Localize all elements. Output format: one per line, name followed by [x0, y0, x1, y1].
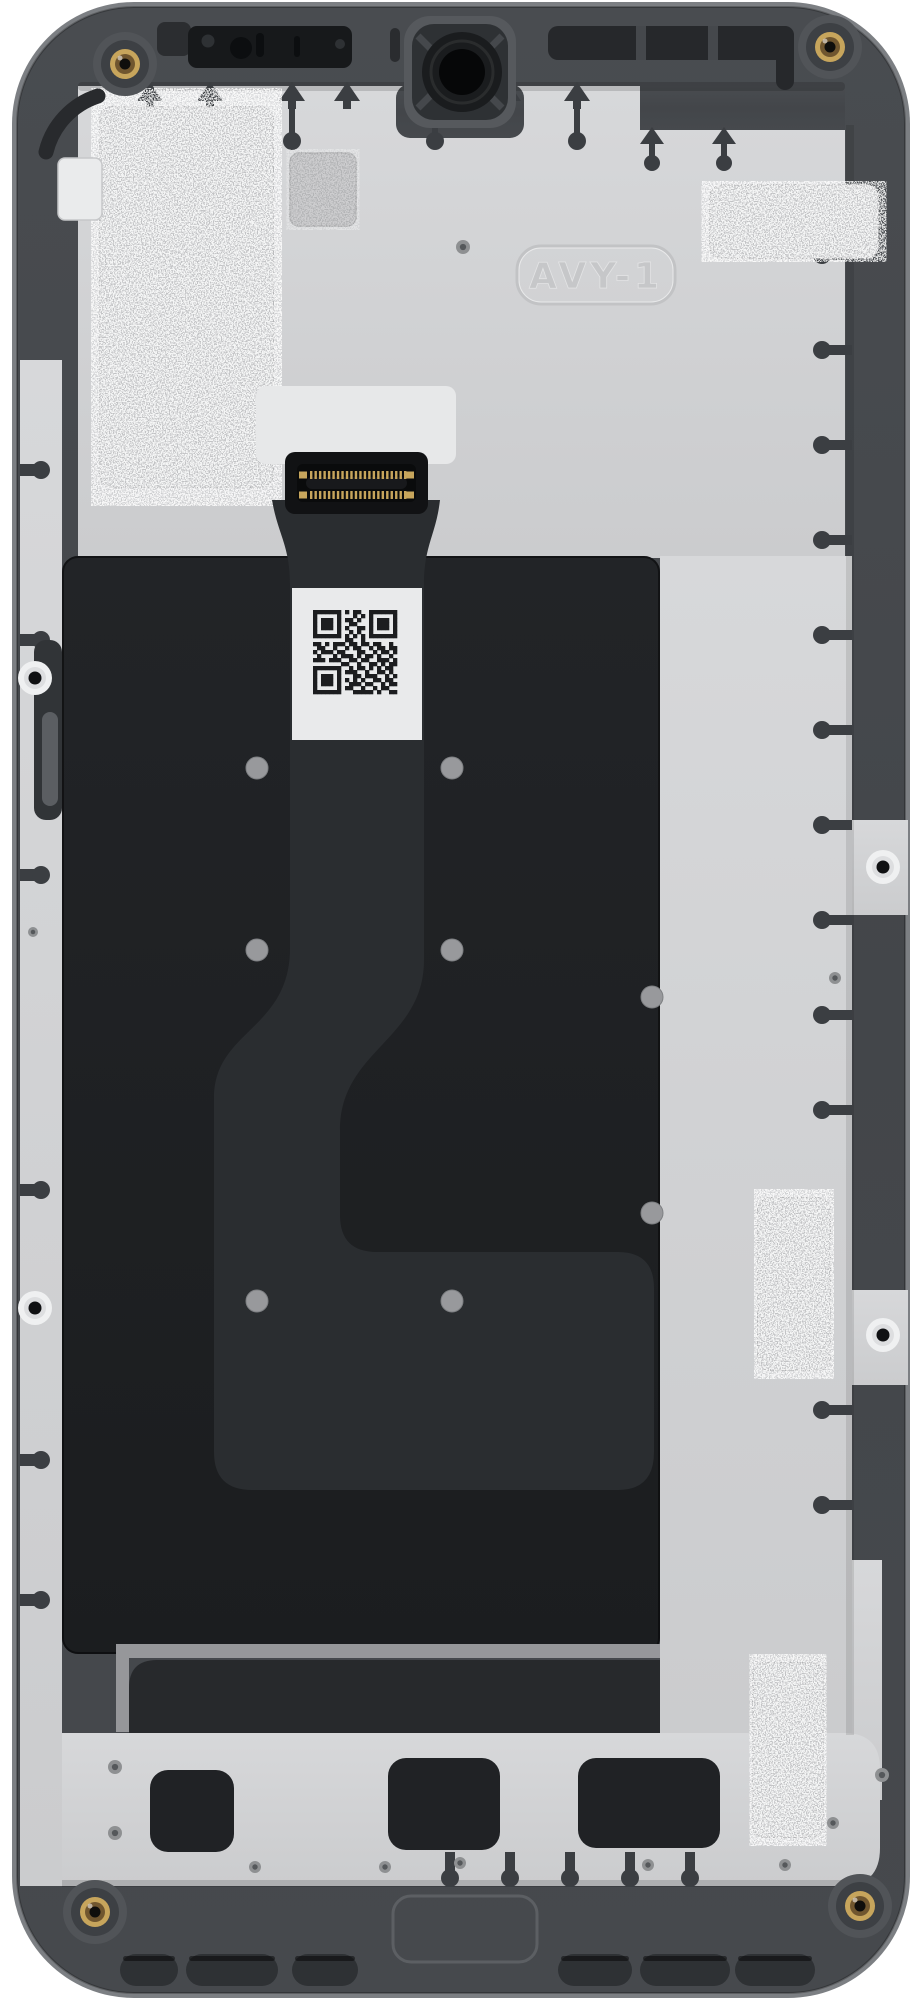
qr-module [373, 650, 377, 654]
qr-module [337, 690, 341, 694]
connector-pin [359, 471, 361, 479]
qr-module [357, 618, 361, 622]
connector-pin [382, 471, 384, 479]
qr-module [345, 662, 349, 666]
qr-module [377, 654, 381, 658]
qr-module [345, 678, 349, 682]
qr-module [385, 658, 389, 662]
qr-module [385, 686, 389, 690]
small-hole [456, 240, 470, 254]
qr-module [313, 670, 317, 674]
qr-module [357, 662, 361, 666]
qr-module [333, 642, 337, 646]
qr-module [361, 678, 365, 682]
qr-module [357, 610, 361, 614]
camera-lens [439, 49, 485, 95]
qr-module [321, 626, 325, 630]
bottom-plate-cutout [578, 1758, 720, 1848]
panel-dot [441, 1290, 463, 1312]
qr-module [357, 690, 361, 694]
qr-module [313, 690, 317, 694]
qr-module [373, 678, 377, 682]
connector-pin [382, 491, 384, 499]
connector-pad [299, 492, 307, 499]
connector-pin [323, 471, 325, 479]
metal-pad [290, 153, 356, 226]
foil-pad [753, 1663, 823, 1837]
phone-frame-photo: AVY-1 [0, 0, 922, 2000]
connector-pin [368, 491, 370, 499]
qr-module [353, 682, 357, 686]
panel-lower-section [129, 1660, 660, 1733]
qr-module [377, 690, 381, 694]
qr-module [317, 690, 321, 694]
qr-module [393, 650, 397, 654]
qr-module [393, 626, 397, 630]
bottom-slot [640, 1954, 730, 1986]
qr-module [313, 610, 317, 614]
earpiece-speaker [188, 26, 352, 68]
qr-module [369, 622, 373, 626]
connector-pin [377, 471, 379, 479]
speaker-slot-1 [256, 33, 264, 57]
qr-module [341, 642, 345, 646]
small-hole [642, 1859, 654, 1871]
qr-module [321, 690, 325, 694]
qr-module [349, 670, 353, 674]
shadow-right-joint [846, 125, 854, 1735]
qr-module [345, 610, 349, 614]
qr-module [369, 666, 373, 670]
qr-module [373, 674, 377, 678]
qr-module [345, 646, 349, 650]
qr-module [317, 646, 321, 650]
antenna-bridge-2 [708, 26, 718, 60]
qr-module [377, 634, 381, 638]
qr-module [369, 654, 373, 658]
qr-module [353, 646, 357, 650]
connector-pin [364, 471, 366, 479]
qr-module [381, 622, 385, 626]
qr-module [369, 618, 373, 622]
bottom-slot [292, 1954, 358, 1986]
qr-module [369, 614, 373, 618]
small-hole [249, 1861, 261, 1873]
screw-boss [93, 32, 157, 96]
qr-module [333, 610, 337, 614]
qr-module [389, 654, 393, 658]
qr-module [337, 634, 341, 638]
connector-pin [373, 471, 375, 479]
qr-module [345, 670, 349, 674]
qr-module [361, 666, 365, 670]
plate-grommet [866, 850, 900, 884]
qr-module [361, 634, 365, 638]
qr-module [389, 662, 393, 666]
qr-module [329, 626, 333, 630]
qr-module [353, 690, 357, 694]
qr-module [369, 626, 373, 630]
connector-pin [391, 491, 393, 499]
panel-dot [641, 986, 663, 1008]
qr-module [377, 618, 381, 622]
qr-module [345, 686, 349, 690]
qr-module [385, 622, 389, 626]
speaker-hole-right [335, 39, 345, 49]
qr-module [341, 662, 345, 666]
qr-module [313, 666, 317, 670]
qr-module [325, 682, 329, 686]
small-hole [779, 1859, 791, 1871]
qr-module [393, 614, 397, 618]
qr-module [333, 666, 337, 670]
qr-module [337, 626, 341, 630]
qr-module [321, 622, 325, 626]
qr-module [381, 686, 385, 690]
qr-module [365, 682, 369, 686]
qr-module [393, 622, 397, 626]
connector-pin [337, 491, 339, 499]
qr-module [365, 658, 369, 662]
qr-module [321, 678, 325, 682]
small-hole [108, 1826, 122, 1840]
qr-module [329, 682, 333, 686]
qr-module [345, 638, 349, 642]
qr-module [381, 626, 385, 630]
connector-pin [341, 491, 343, 499]
qr-module [389, 678, 393, 682]
qr-module [345, 634, 349, 638]
qr-module [325, 634, 329, 638]
qr-module [389, 642, 393, 646]
qr-module [373, 686, 377, 690]
qr-module [377, 622, 381, 626]
qr-module [321, 610, 325, 614]
qr-module [337, 674, 341, 678]
qr-module [333, 690, 337, 694]
connector-pad [406, 472, 414, 479]
antenna-bridge-1 [636, 26, 646, 60]
connector-pin [332, 491, 334, 499]
connector-pin [391, 471, 393, 479]
connector-pin [355, 491, 357, 499]
frame-step-top-right [640, 86, 845, 130]
plate-grommet [866, 1318, 900, 1352]
qr-module [329, 618, 333, 622]
qr-module [365, 690, 369, 694]
qr-module [337, 630, 341, 634]
qr-module [369, 646, 373, 650]
qr-module [313, 686, 317, 690]
screw-boss [798, 15, 862, 79]
qr-module [317, 610, 321, 614]
screw-boss [63, 1880, 127, 1944]
qr-module [381, 662, 385, 666]
connector-pin [386, 491, 388, 499]
qr-module [369, 674, 373, 678]
qr-module [317, 654, 321, 658]
qr-module [377, 658, 381, 662]
screw-boss [828, 1874, 892, 1938]
panel-dot [246, 939, 268, 961]
panel-dot [441, 757, 463, 779]
corner-square-recess [157, 22, 191, 56]
qr-module [349, 638, 353, 642]
qr-module [345, 626, 349, 630]
qr-module [353, 614, 357, 618]
connector-pin [359, 491, 361, 499]
qr-module [313, 618, 317, 622]
connector-pin [373, 491, 375, 499]
qr-module [393, 662, 397, 666]
plate-left-strip [20, 360, 62, 1886]
qr-module [385, 678, 389, 682]
connector-pin [350, 471, 352, 479]
qr-module [389, 646, 393, 650]
qr-module [349, 642, 353, 646]
qr-module [321, 674, 325, 678]
qr-module [357, 630, 361, 634]
qr-module [377, 666, 381, 670]
bottom-plate-cutout [388, 1758, 500, 1850]
qr-module [325, 650, 329, 654]
qr-module [353, 670, 357, 674]
qr-module [317, 658, 321, 662]
qr-module [313, 634, 317, 638]
qr-module [329, 690, 333, 694]
panel-dot [246, 757, 268, 779]
qr-module [321, 650, 325, 654]
qr-module [337, 678, 341, 682]
qr-module [381, 650, 385, 654]
connector-pin [346, 491, 348, 499]
qr-module [345, 654, 349, 658]
qr-module [361, 650, 365, 654]
connector-pin [377, 491, 379, 499]
connector-pin [355, 471, 357, 479]
qr-module [361, 614, 365, 618]
qr-module [341, 650, 345, 654]
qr-module [369, 634, 373, 638]
qr-module [321, 666, 325, 670]
small-hole [827, 1817, 839, 1829]
qr-module [385, 650, 389, 654]
small-hole [108, 1760, 122, 1774]
connector-pin [319, 471, 321, 479]
side-button [42, 712, 58, 806]
connector-pin [323, 491, 325, 499]
qr-module [361, 658, 365, 662]
connector-pin [314, 471, 316, 479]
qr-module [373, 642, 377, 646]
qr-module [313, 658, 317, 662]
connector-pin [350, 491, 352, 499]
qr-module [381, 646, 385, 650]
qr-module [389, 682, 393, 686]
qr-module [325, 674, 329, 678]
connector-pin [328, 491, 330, 499]
qr-module [325, 610, 329, 614]
qr-module [349, 654, 353, 658]
connector-pin [332, 471, 334, 479]
small-hole [379, 1861, 391, 1873]
qr-module [313, 682, 317, 686]
bottom-slot [735, 1954, 815, 1986]
qr-module [337, 642, 341, 646]
connector-pad [406, 492, 414, 499]
qr-module [349, 686, 353, 690]
qr-module [349, 658, 353, 662]
qr-module [337, 622, 341, 626]
qr-module [349, 618, 353, 622]
qr-module [385, 674, 389, 678]
qr-module [349, 630, 353, 634]
panel-dot [441, 939, 463, 961]
qr-module [333, 634, 337, 638]
qr-module [313, 622, 317, 626]
qr-module [337, 610, 341, 614]
qr-module [329, 658, 333, 662]
qr-module [357, 666, 361, 670]
qr-module [369, 610, 373, 614]
qr-module [389, 666, 393, 670]
qr-module [321, 658, 325, 662]
qr-module [369, 630, 373, 634]
qr-module [337, 670, 341, 674]
qr-module [313, 626, 317, 630]
qr-module [325, 618, 329, 622]
qr-module [385, 610, 389, 614]
qr-module [357, 674, 361, 678]
qr-module [361, 626, 365, 630]
connector-pin [368, 471, 370, 479]
qr-module [389, 690, 393, 694]
qr-module [369, 690, 373, 694]
qr-module [325, 642, 329, 646]
camera-side-slot [390, 28, 400, 62]
qr-module [385, 626, 389, 630]
qr-module [365, 654, 369, 658]
qr-module [393, 618, 397, 622]
qr-module [377, 678, 381, 682]
speaker-hole-small [202, 35, 215, 48]
connector-pin [314, 491, 316, 499]
qr-module [321, 618, 325, 622]
qr-module [369, 662, 373, 666]
qr-module [325, 622, 329, 626]
qr-module [329, 650, 333, 654]
bottom-plate-cutout [150, 1770, 234, 1852]
connector-pin [328, 471, 330, 479]
connector-pin [400, 471, 402, 479]
qr-module [393, 646, 397, 650]
qr-module [325, 626, 329, 630]
qr-module [361, 638, 365, 642]
qr-module [329, 678, 333, 682]
connector-pin [386, 471, 388, 479]
qr-module [357, 650, 361, 654]
connector-pin [310, 471, 312, 479]
qr-module [333, 654, 337, 658]
connector-pin [319, 491, 321, 499]
qr-module [377, 626, 381, 630]
qr-module [353, 622, 357, 626]
qr-module [313, 674, 317, 678]
qr-module [329, 622, 333, 626]
plate-grommet [18, 661, 52, 695]
qr-module [361, 690, 365, 694]
connector-pin [400, 491, 402, 499]
plate-grommet [18, 1291, 52, 1325]
qr-module [353, 678, 357, 682]
qr-module [329, 634, 333, 638]
qr-module [393, 630, 397, 634]
qr-module [361, 686, 365, 690]
qr-module [381, 682, 385, 686]
foil-pad [710, 185, 878, 258]
qr-module [365, 674, 369, 678]
small-hole [28, 927, 38, 937]
qr-module [389, 610, 393, 614]
qr-module [317, 634, 321, 638]
qr-module [381, 618, 385, 622]
qr-module [349, 622, 353, 626]
foil-pad [100, 107, 273, 487]
qr-module [393, 674, 397, 678]
qr-module [313, 642, 317, 646]
qr-module [325, 690, 329, 694]
qr-module [325, 666, 329, 670]
qr-module [381, 670, 385, 674]
qr-module [353, 642, 357, 646]
qr-module [313, 630, 317, 634]
panel-dot [641, 1202, 663, 1224]
qr-module [357, 626, 361, 630]
small-hole [875, 1768, 889, 1782]
qr-module [393, 658, 397, 662]
qr-module [389, 670, 393, 674]
qr-module [365, 670, 369, 674]
qr-module [345, 618, 349, 622]
qr-module [377, 642, 381, 646]
qr-module [373, 662, 377, 666]
qr-module [393, 634, 397, 638]
antenna-recess [548, 26, 794, 60]
qr-module [337, 618, 341, 622]
qr-module [377, 610, 381, 614]
qr-module [349, 666, 353, 670]
small-hole [829, 972, 841, 984]
speaker-hole-large [230, 37, 252, 59]
qr-module [313, 678, 317, 682]
connector-pin [337, 471, 339, 479]
qr-module [381, 610, 385, 614]
qr-module [393, 690, 397, 694]
bottom-slot [186, 1954, 278, 1986]
connector-pin [346, 471, 348, 479]
left-edge-white-tab [58, 158, 102, 220]
qr-module [337, 658, 341, 662]
qr-module [329, 674, 333, 678]
qr-module [357, 654, 361, 658]
qr-module [353, 610, 357, 614]
connector-pin [395, 491, 397, 499]
bottom-slot [120, 1954, 178, 1986]
qr-module [385, 634, 389, 638]
qr-module [333, 646, 337, 650]
qr-module [357, 682, 361, 686]
qr-module [349, 682, 353, 686]
